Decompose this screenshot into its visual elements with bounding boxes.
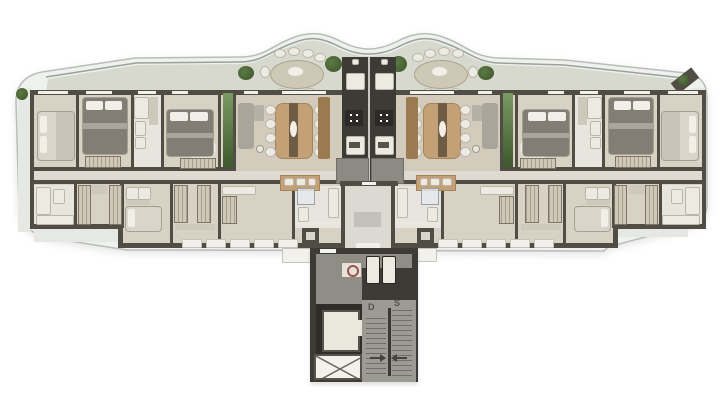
tv-sideboard <box>406 97 418 159</box>
core-side-stub <box>282 248 312 263</box>
counter-item <box>296 178 306 186</box>
tv-sideboard <box>318 97 330 159</box>
washer <box>597 187 610 200</box>
floor-lamp <box>256 145 264 153</box>
apartment-right <box>391 57 706 250</box>
wardrobe <box>109 185 122 225</box>
laundry-counter <box>126 200 150 205</box>
washer <box>138 187 151 200</box>
bed-pillow <box>528 112 546 121</box>
wardrobe <box>180 158 216 169</box>
wardrobe <box>85 156 121 168</box>
dining-chair <box>460 147 471 157</box>
door-mat <box>354 212 381 227</box>
sofa-chaise <box>472 105 482 121</box>
bedroom-divider-wall <box>515 93 518 171</box>
wardrobe <box>614 185 627 225</box>
ledge-box <box>254 239 274 248</box>
wardrobe <box>174 185 188 223</box>
terrace-chair <box>288 47 300 56</box>
bedroom-divider-wall <box>218 93 221 171</box>
wardrobe <box>548 185 562 223</box>
stair-flight-down <box>366 314 386 376</box>
counter-item <box>442 178 452 186</box>
stair-rail <box>388 308 391 376</box>
bath-partition <box>295 222 341 225</box>
dining-chair <box>460 119 471 129</box>
ledge-box <box>510 239 530 248</box>
left-edge-plant <box>16 88 28 100</box>
window <box>478 91 492 94</box>
ledge-box <box>438 239 458 248</box>
window <box>244 91 258 94</box>
refrigerator <box>346 73 365 90</box>
dining-chair <box>460 133 471 143</box>
bath-wall <box>292 184 295 243</box>
vanity <box>578 97 587 125</box>
toilet <box>671 189 683 204</box>
wardrobe <box>520 158 556 169</box>
storage-counter <box>222 186 256 195</box>
vanity <box>328 188 339 218</box>
ledge-box <box>230 239 250 248</box>
vanity <box>36 215 74 225</box>
bedroom-divider-wall <box>572 93 575 171</box>
bath-wall <box>391 184 395 243</box>
ventilation-shaft-x <box>314 354 362 380</box>
window <box>668 91 698 94</box>
duct-shaft-inner <box>421 232 430 240</box>
cooktop-burners <box>378 113 390 123</box>
stair-down-label: D <box>368 302 375 312</box>
counter-item <box>420 178 428 186</box>
sofa <box>482 103 498 149</box>
ledge-box <box>486 239 506 248</box>
window <box>624 91 650 94</box>
washer <box>585 187 598 200</box>
bed-fold <box>167 133 213 138</box>
dining-chair <box>265 147 276 157</box>
bed-blanket <box>56 112 74 160</box>
bed-pillow <box>190 112 208 121</box>
ledge-box <box>182 239 202 248</box>
oven-door <box>378 142 389 148</box>
shower-glass <box>421 188 439 205</box>
wardrobe <box>525 185 539 223</box>
service-duct <box>382 256 396 284</box>
bedroom-divider-wall <box>602 93 605 171</box>
dining-chair <box>265 105 276 115</box>
window <box>172 91 188 94</box>
bathtub <box>36 187 51 215</box>
bath-wall <box>441 184 444 243</box>
green-wall-planter <box>223 93 233 171</box>
oven-door <box>349 142 360 148</box>
bed-fold <box>609 123 653 129</box>
bed-pillow <box>128 209 135 227</box>
service-divider <box>218 184 221 243</box>
ledge-box <box>206 239 226 248</box>
window <box>548 91 564 94</box>
window <box>580 91 598 94</box>
shower <box>587 97 602 119</box>
shower-glass <box>297 188 315 205</box>
vanity <box>149 97 158 125</box>
bedroom-divider-wall <box>76 93 79 171</box>
floor-plan: D S <box>0 0 720 408</box>
toilet <box>590 121 601 136</box>
hall-door <box>362 182 376 185</box>
sink <box>590 137 601 149</box>
bathtub <box>685 187 700 215</box>
bedroom-divider-wall <box>657 93 660 171</box>
bed-pillow <box>170 112 188 121</box>
window <box>38 91 68 94</box>
wardrobe <box>197 185 211 223</box>
table-platter <box>439 121 446 137</box>
dining-chair <box>460 105 471 115</box>
window <box>86 91 112 94</box>
bed-pillow <box>689 116 696 133</box>
vanity <box>397 188 408 218</box>
terrace-chair <box>438 47 450 56</box>
green-wall-planter <box>503 93 513 171</box>
left-exterior-wall <box>30 90 34 229</box>
closet-shelf <box>91 185 107 194</box>
wardrobe <box>499 196 514 224</box>
stair-up-label: S <box>394 298 400 308</box>
sink <box>135 137 146 149</box>
vent <box>352 59 359 65</box>
sofa-chaise <box>254 105 264 121</box>
counter-item <box>284 178 294 186</box>
counter-item <box>430 178 440 186</box>
ledge-box <box>462 239 482 248</box>
floor-lamp <box>472 145 480 153</box>
duct-shaft-inner <box>306 232 315 240</box>
bed-pillow <box>601 209 608 227</box>
living-wall <box>233 93 236 171</box>
bed-pillow <box>614 101 631 110</box>
toilet <box>298 207 309 222</box>
dining-chair <box>265 133 276 143</box>
service-divider <box>74 184 77 224</box>
storage-counter <box>480 186 514 195</box>
stair-arrow-stem <box>370 357 380 359</box>
wardrobe <box>615 156 651 168</box>
service-divider <box>170 184 173 243</box>
bed-fold <box>83 123 127 129</box>
wardrobe <box>222 196 237 224</box>
cooktop-burners <box>348 113 360 123</box>
apartment-left <box>30 57 345 250</box>
stair-arrow-right <box>380 354 386 362</box>
stair-arrow-left <box>391 354 397 362</box>
ledge-box <box>278 239 298 248</box>
bed-pillow <box>548 112 566 121</box>
shower <box>134 97 149 119</box>
core-side-stub <box>415 248 437 262</box>
bath-partition <box>395 222 441 225</box>
sofa <box>238 103 254 149</box>
vent <box>381 59 388 65</box>
fire-hose-icon <box>347 265 359 277</box>
toilet <box>53 189 65 204</box>
service-divider <box>515 184 518 243</box>
refrigerator <box>375 73 394 90</box>
dining-chair <box>265 119 276 129</box>
storage-counter <box>521 224 561 230</box>
wardrobe <box>645 185 658 225</box>
storage-counter <box>175 224 215 230</box>
bed-pillow <box>689 136 696 153</box>
ledge-box <box>534 239 554 248</box>
bed-pillow <box>633 101 650 110</box>
counter-item <box>308 178 316 186</box>
toilet <box>427 207 438 222</box>
terrace-door <box>282 91 326 94</box>
bed-fold <box>523 133 569 138</box>
toilet <box>135 121 146 136</box>
service-duct <box>366 256 380 284</box>
stair-flight-up <box>392 306 412 376</box>
terrace-door <box>410 91 454 94</box>
closet-shelf <box>629 185 645 194</box>
core-door <box>320 249 336 253</box>
window <box>138 91 156 94</box>
wardrobe <box>78 185 91 225</box>
bed-pillow <box>40 136 47 153</box>
vanity <box>662 215 700 225</box>
elevator-cab <box>322 310 360 352</box>
bed-pillow <box>105 101 122 110</box>
bedroom-divider-wall <box>161 93 164 171</box>
service-divider <box>563 184 566 243</box>
laundry-counter <box>586 200 610 205</box>
living-wall <box>500 93 503 171</box>
table-platter <box>290 121 297 137</box>
bed-pillow <box>86 101 103 110</box>
bed-blanket <box>662 112 680 160</box>
stair-arrow-stem <box>397 357 407 359</box>
left-exterior-wall <box>702 90 706 229</box>
bed-pillow <box>40 116 47 133</box>
